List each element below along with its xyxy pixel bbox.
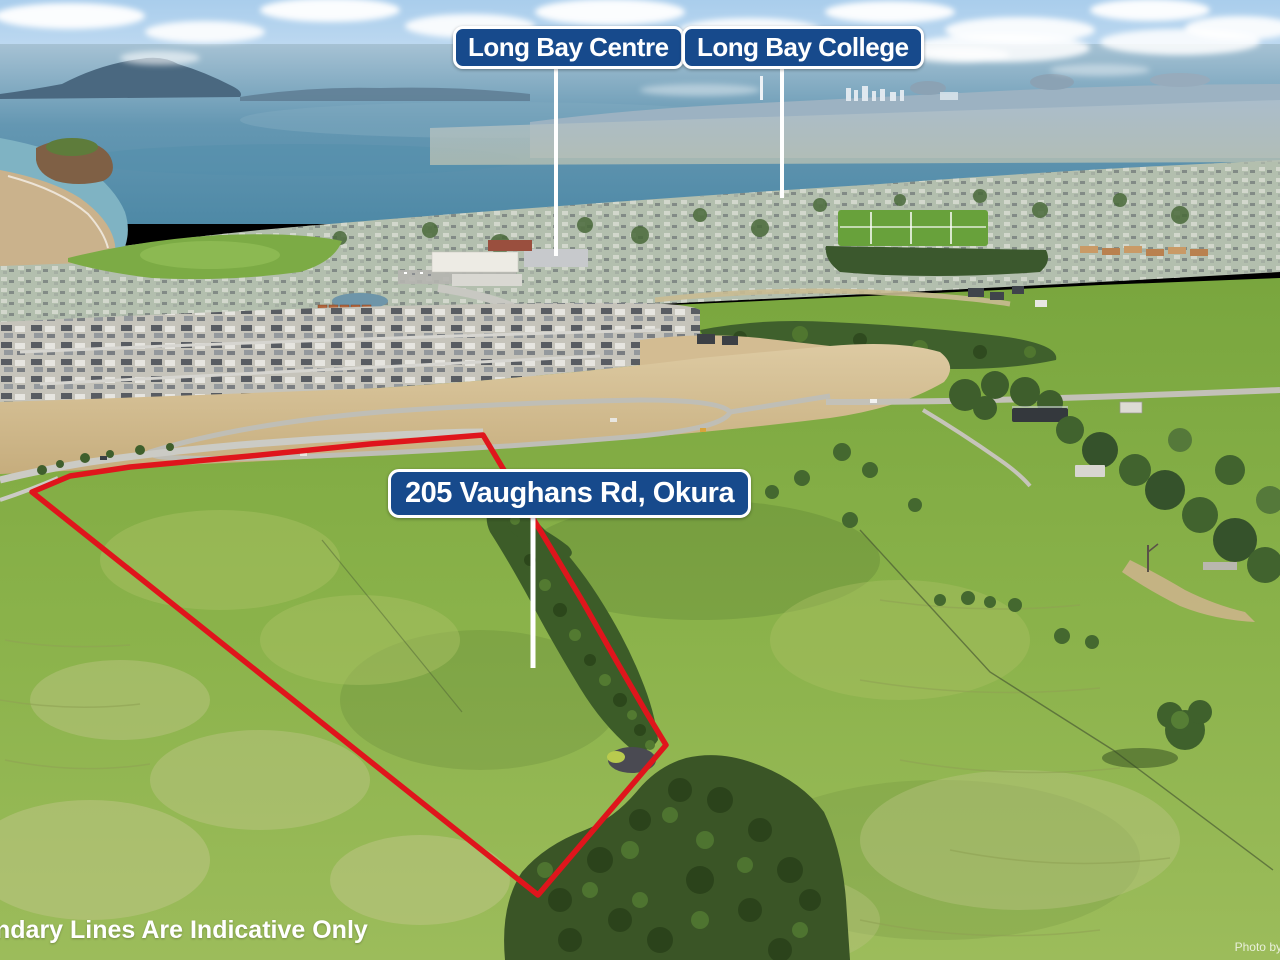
photo-credit-watermark: Photo by [1235, 940, 1280, 954]
aerial-photo: Long Bay Centre Long Bay College 205 Vau… [0, 0, 1280, 960]
label-long-bay-centre: Long Bay Centre [453, 26, 684, 69]
beach-and-cliffs [0, 138, 128, 266]
label-long-bay-college: Long Bay College [682, 26, 924, 69]
label-property-address: 205 Vaughans Rd, Okura [388, 469, 751, 518]
sky-tower-silhouette [760, 76, 763, 100]
boundary-disclaimer-text: ndary Lines Are Indicative Only [0, 916, 368, 945]
